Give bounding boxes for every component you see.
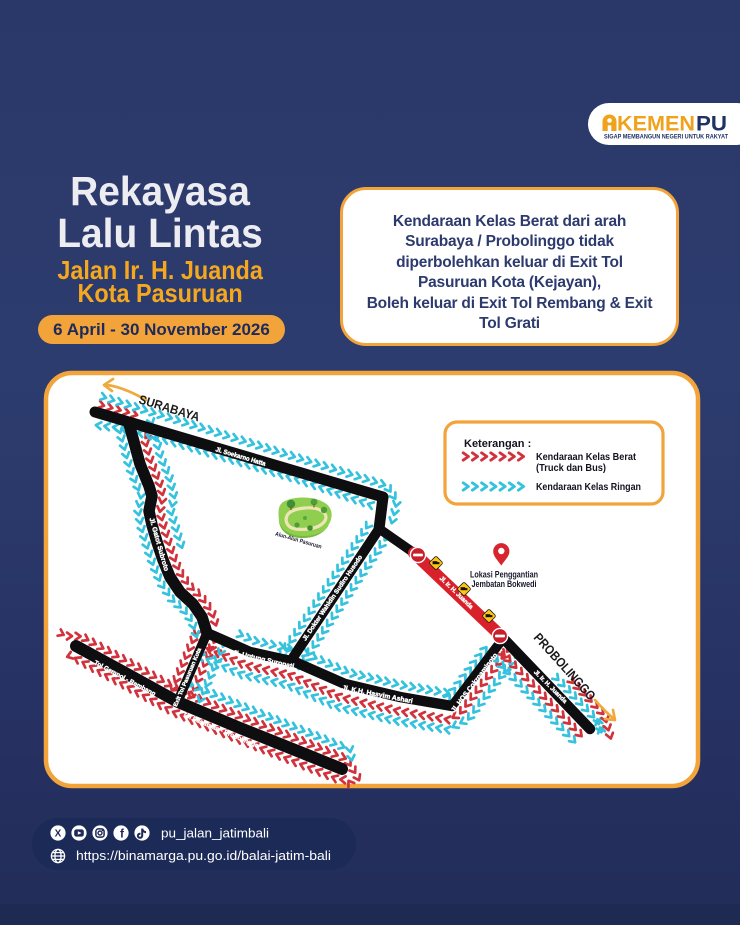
svg-text:Kendaraan Kelas Berat: Kendaraan Kelas Berat: [536, 452, 637, 463]
svg-text:https://binamarga.pu.go.id/bal: https://binamarga.pu.go.id/balai-jatim-b…: [76, 848, 331, 863]
svg-text:(Truck dan Bus): (Truck dan Bus): [536, 463, 606, 474]
svg-text:Kendaraan Kelas Ringan: Kendaraan Kelas Ringan: [536, 482, 641, 493]
svg-text:Jembatan Bokwedi: Jembatan Bokwedi: [472, 579, 537, 589]
svg-text:Lokasi Penggantian: Lokasi Penggantian: [470, 570, 538, 580]
svg-text:X: X: [55, 829, 62, 840]
svg-text:Keterangan :: Keterangan :: [464, 438, 531, 450]
svg-text:pu_jalan_jatimbali: pu_jalan_jatimbali: [161, 826, 269, 841]
